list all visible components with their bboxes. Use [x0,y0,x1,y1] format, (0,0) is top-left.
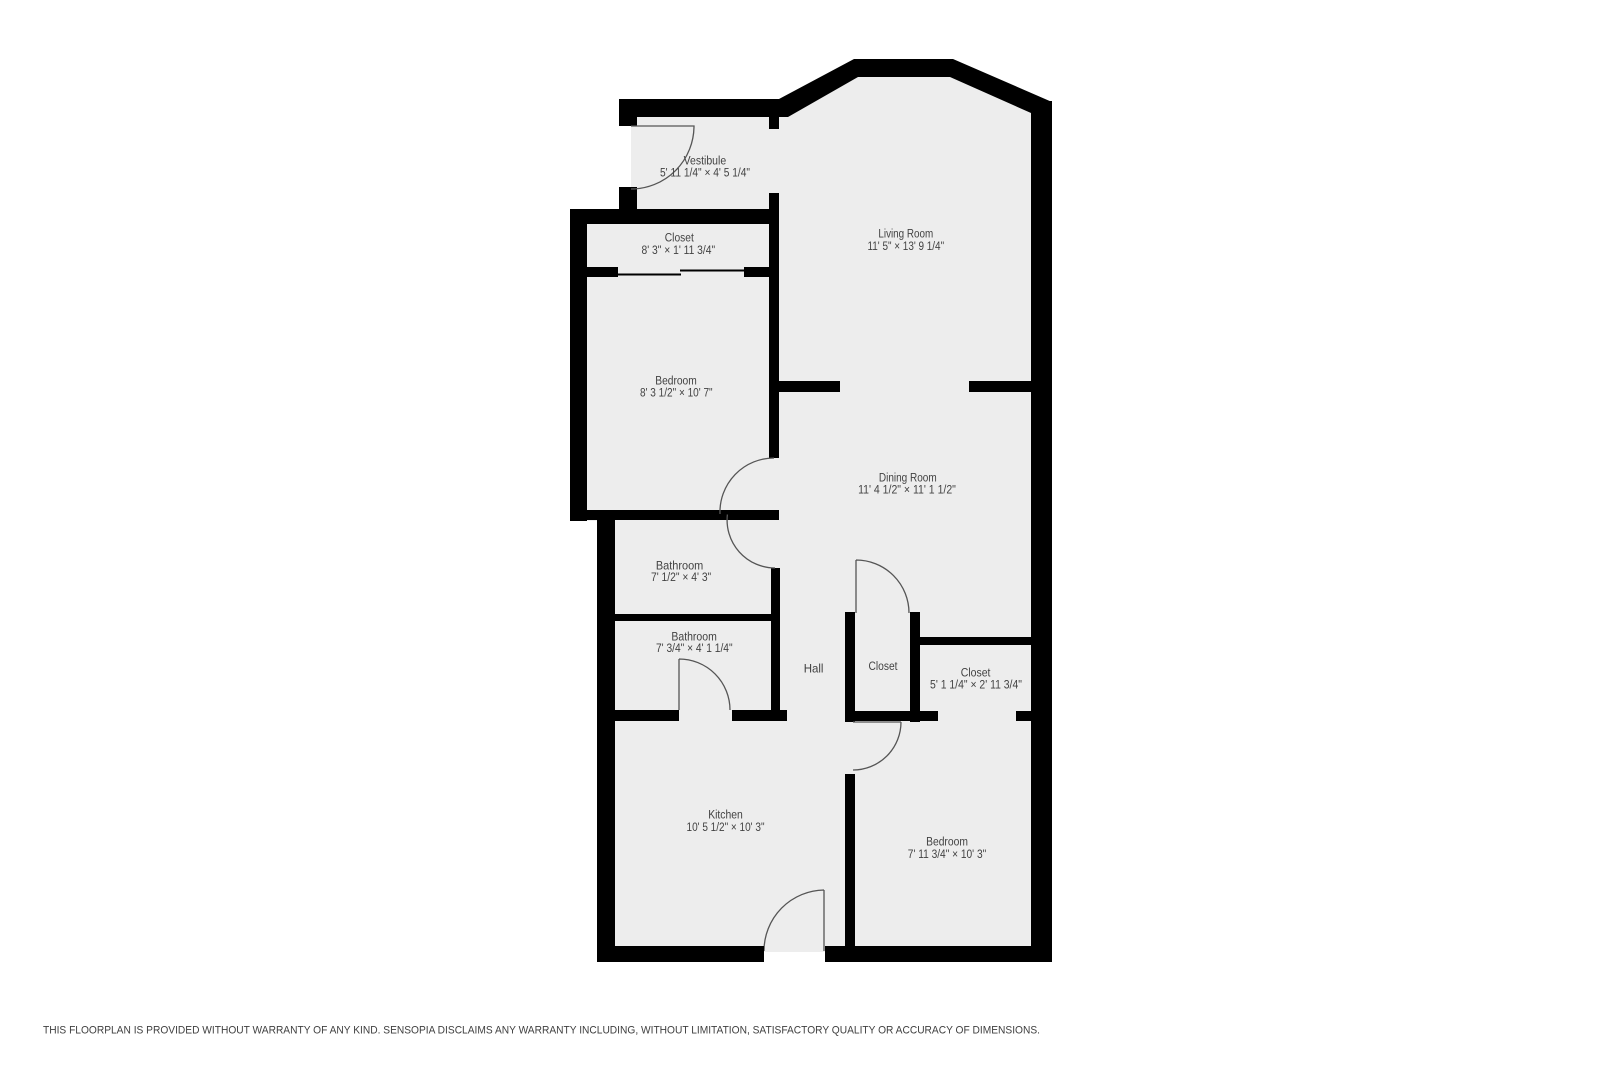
svg-text:5' 11 1/4" × 4' 5 1/4": 5' 11 1/4" × 4' 5 1/4" [660,166,750,180]
svg-text:11' 4 1/2" × 11' 1 1/2": 11' 4 1/2" × 11' 1 1/2" [858,483,956,497]
svg-text:11' 5" × 13' 9 1/4": 11' 5" × 13' 9 1/4" [868,239,945,253]
svg-text:7' 11 3/4" × 10' 3": 7' 11 3/4" × 10' 3" [908,847,986,861]
svg-text:7' 1/2" × 4' 3": 7' 1/2" × 4' 3" [651,570,711,584]
svg-text:THIS FLOORPLAN IS PROVIDED WIT: THIS FLOORPLAN IS PROVIDED WITHOUT WARRA… [43,1025,1040,1037]
svg-text:10' 5 1/2" × 10' 3": 10' 5 1/2" × 10' 3" [687,820,765,834]
svg-text:5' 1 1/4" × 2' 11 3/4": 5' 1 1/4" × 2' 11 3/4" [930,678,1022,692]
svg-text:7' 3/4" × 4' 1 1/4": 7' 3/4" × 4' 1 1/4" [656,641,733,655]
svg-text:8' 3 1/2" × 10' 7": 8' 3 1/2" × 10' 7" [640,386,713,400]
svg-text:Hall: Hall [804,661,824,675]
svg-text:Closet: Closet [869,659,899,673]
svg-text:8' 3" × 1' 11 3/4": 8' 3" × 1' 11 3/4" [642,243,716,257]
